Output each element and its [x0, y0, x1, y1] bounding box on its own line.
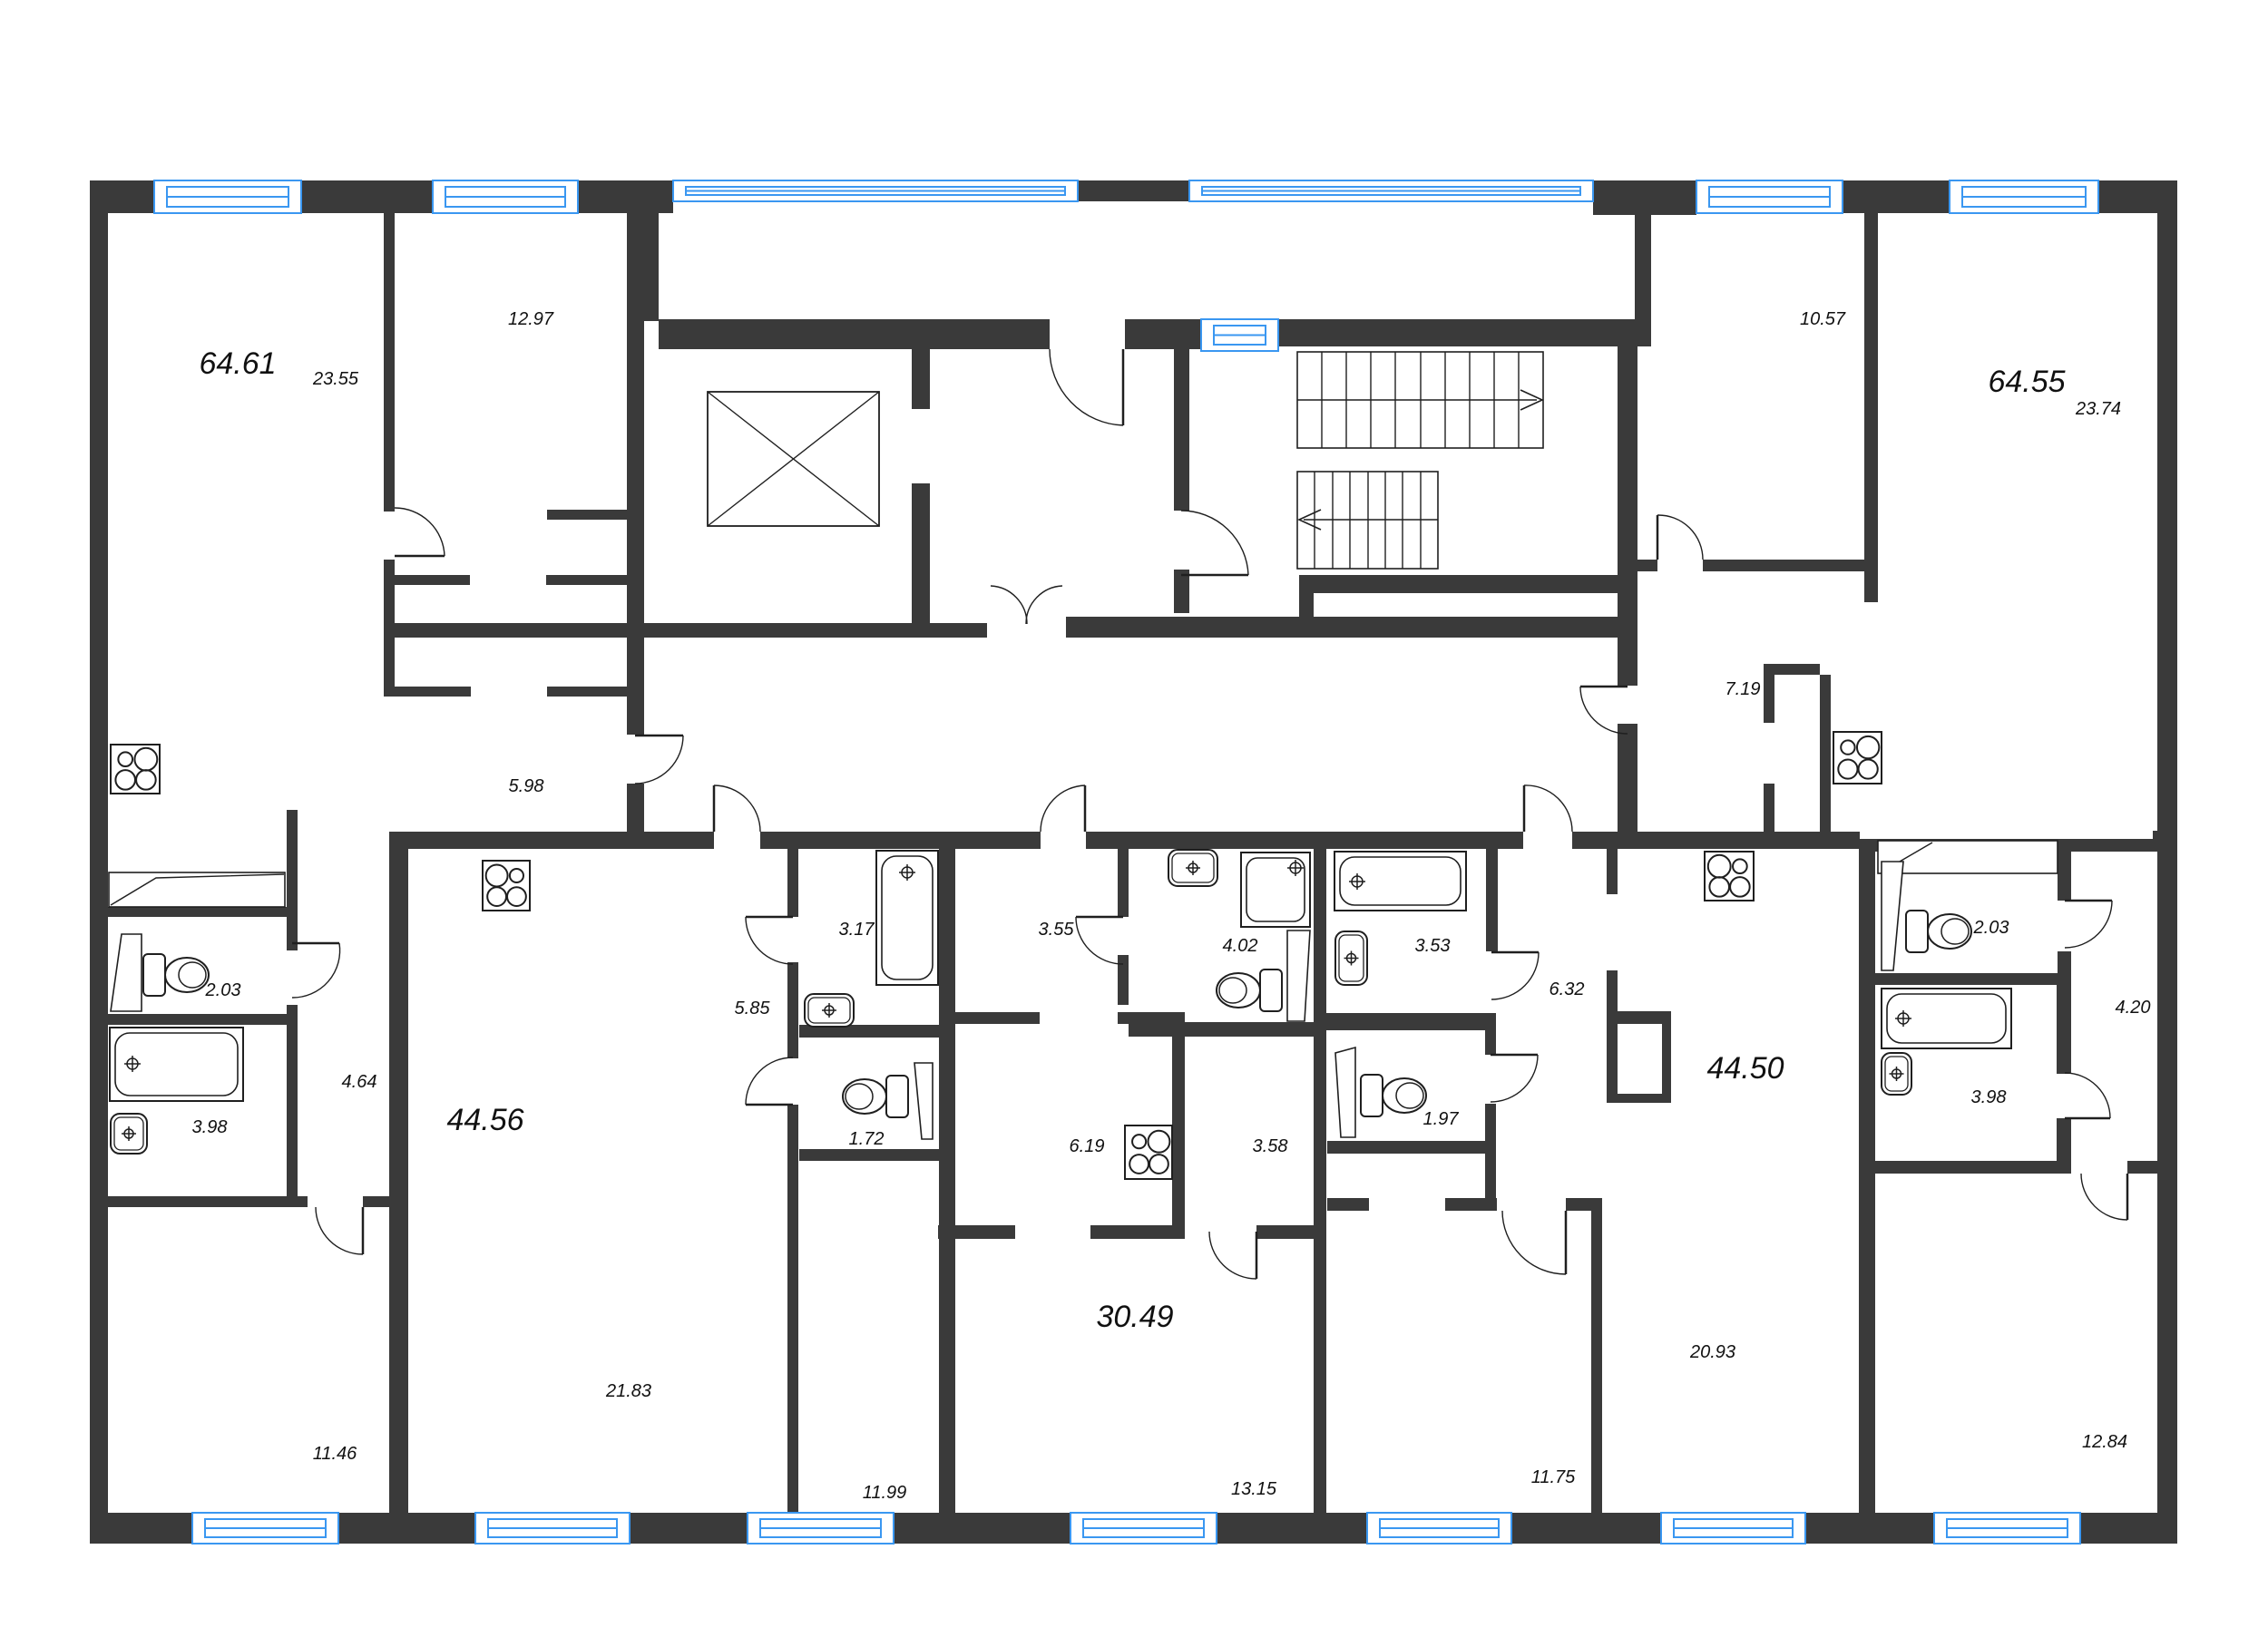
svg-text:23.55: 23.55 [312, 369, 359, 389]
svg-text:1.97: 1.97 [1423, 1109, 1460, 1129]
svg-text:4.02: 4.02 [1223, 936, 1258, 956]
svg-text:23.74: 23.74 [2075, 399, 2121, 419]
svg-text:2.03: 2.03 [1973, 918, 2009, 938]
svg-text:3.98: 3.98 [192, 1117, 228, 1137]
svg-text:64.61: 64.61 [199, 346, 276, 381]
svg-text:11.75: 11.75 [1531, 1467, 1576, 1487]
svg-text:12.84: 12.84 [2082, 1432, 2127, 1452]
svg-text:3.58: 3.58 [1253, 1136, 1288, 1156]
svg-text:20.93: 20.93 [1689, 1342, 1735, 1362]
svg-text:11.99: 11.99 [863, 1483, 907, 1503]
svg-text:3.98: 3.98 [1971, 1087, 2007, 1107]
svg-text:44.50: 44.50 [1706, 1051, 1784, 1086]
svg-text:13.15: 13.15 [1231, 1479, 1277, 1499]
svg-text:3.17: 3.17 [839, 920, 875, 940]
svg-text:3.55: 3.55 [1039, 920, 1075, 940]
svg-text:1.72: 1.72 [849, 1129, 885, 1149]
svg-text:44.56: 44.56 [446, 1103, 523, 1137]
svg-text:3.53: 3.53 [1415, 936, 1451, 956]
svg-text:10.57: 10.57 [1800, 309, 1846, 329]
svg-text:11.46: 11.46 [313, 1444, 357, 1464]
svg-text:21.83: 21.83 [605, 1381, 651, 1401]
svg-text:6.19: 6.19 [1070, 1136, 1105, 1156]
svg-text:7.19: 7.19 [1725, 679, 1761, 699]
svg-text:6.32: 6.32 [1549, 979, 1585, 999]
svg-text:4.20: 4.20 [2116, 998, 2151, 1018]
svg-text:30.49: 30.49 [1096, 1300, 1173, 1334]
svg-text:64.55: 64.55 [1988, 365, 2065, 399]
svg-text:4.64: 4.64 [342, 1072, 377, 1092]
svg-text:12.97: 12.97 [508, 309, 554, 329]
svg-text:5.85: 5.85 [735, 999, 771, 1018]
svg-text:2.03: 2.03 [205, 980, 241, 1000]
svg-text:5.98: 5.98 [509, 776, 544, 796]
